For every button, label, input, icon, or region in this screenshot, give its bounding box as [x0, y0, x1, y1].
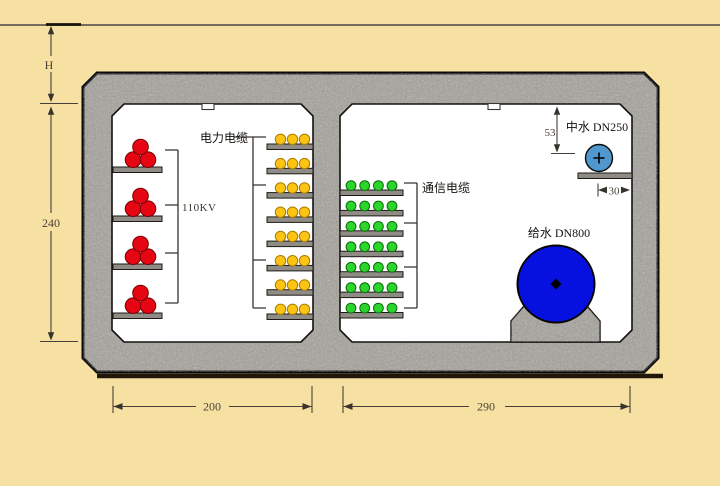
- power-cable: [275, 207, 285, 217]
- power-cable: [287, 304, 297, 314]
- power-cable: [275, 231, 285, 241]
- tunnel-cross-section-diagram: H 240 110KV 电力电缆 通信电缆 中水 DN250: [0, 0, 720, 486]
- cable-tray: [267, 265, 313, 271]
- dimension-30-label: 30: [609, 186, 621, 198]
- power-cable: [275, 304, 285, 314]
- ceiling-fixture-right: [488, 104, 500, 110]
- hv-cable: [133, 188, 149, 204]
- reclaimed-water-label: 中水 DN250: [566, 119, 628, 134]
- power-cable: [275, 280, 285, 290]
- comm-cable: [346, 201, 356, 211]
- comm-cable: [360, 181, 370, 191]
- comm-cable: [346, 222, 356, 232]
- comm-cable: [360, 262, 370, 272]
- comm-cable: [374, 181, 384, 191]
- comm-cable: [346, 262, 356, 272]
- comm-cable: [374, 262, 384, 272]
- pipe-bracket-shelf: [578, 173, 632, 179]
- cable-tray: [340, 210, 403, 216]
- power-cable: [287, 158, 297, 168]
- comm-cable: [360, 201, 370, 211]
- hv-cable: [133, 285, 149, 301]
- power-cable: [287, 134, 297, 144]
- hv-cable: [133, 236, 149, 252]
- power-cable: [299, 256, 309, 266]
- comm-cable-label: 通信电缆: [422, 181, 470, 195]
- cable-tray: [267, 144, 313, 150]
- cable-tray: [267, 217, 313, 223]
- comm-cable: [360, 303, 370, 313]
- water-supply-label: 给水 DN800: [528, 226, 590, 240]
- comm-cable: [387, 222, 397, 232]
- power-cable: [299, 304, 309, 314]
- cable-tray: [113, 313, 162, 319]
- power-cable: [287, 207, 297, 217]
- comm-cable: [374, 242, 384, 252]
- power-cable: [275, 256, 285, 266]
- power-cable-label: 电力电缆: [200, 131, 248, 145]
- comm-cable: [374, 201, 384, 211]
- cable-tray: [340, 313, 403, 319]
- cable-tray: [340, 292, 403, 298]
- power-cable: [299, 231, 309, 241]
- comm-cable: [374, 222, 384, 232]
- comm-cable: [387, 201, 397, 211]
- cable-tray: [267, 241, 313, 247]
- power-cable: [287, 183, 297, 193]
- cable-tray: [340, 231, 403, 237]
- hv-cable: [133, 139, 149, 155]
- dimension-240-label: 240: [42, 216, 60, 230]
- power-cable: [275, 183, 285, 193]
- power-cable: [299, 183, 309, 193]
- ground-line: [0, 25, 720, 26]
- dimension-200-label: 200: [203, 400, 221, 414]
- cable-tray: [340, 272, 403, 278]
- hv-voltage-label: 110KV: [182, 202, 216, 214]
- power-cable: [299, 207, 309, 217]
- cable-tray: [113, 216, 162, 222]
- power-cable: [287, 280, 297, 290]
- comm-cable: [360, 242, 370, 252]
- power-cable: [299, 280, 309, 290]
- cable-tray: [113, 167, 162, 173]
- comm-cable: [387, 303, 397, 313]
- ceiling-fixture-left: [202, 104, 214, 110]
- comm-cable: [346, 303, 356, 313]
- comm-cable: [387, 242, 397, 252]
- power-cable: [287, 256, 297, 266]
- dimension-53-label: 53: [545, 127, 557, 139]
- power-cable: [299, 134, 309, 144]
- comm-cable: [374, 303, 384, 313]
- power-cable: [287, 231, 297, 241]
- diagram-canvas: H 240 110KV 电力电缆 通信电缆 中水 DN250: [0, 0, 720, 486]
- comm-cable: [387, 181, 397, 191]
- comm-cable: [374, 283, 384, 293]
- dimension-h-label: H: [45, 58, 54, 72]
- comm-cable: [360, 222, 370, 232]
- power-cable: [275, 158, 285, 168]
- comm-cable: [387, 283, 397, 293]
- cable-tray: [267, 290, 313, 296]
- cable-tray: [340, 190, 403, 196]
- comm-cable: [360, 283, 370, 293]
- cable-tray: [113, 264, 162, 270]
- cable-tray: [267, 314, 313, 320]
- comm-cable: [346, 283, 356, 293]
- power-cable: [299, 158, 309, 168]
- cable-tray: [340, 251, 403, 257]
- power-cable: [275, 134, 285, 144]
- cable-tray: [267, 168, 313, 174]
- comm-cable: [387, 262, 397, 272]
- dimension-290-label: 290: [477, 400, 495, 414]
- cable-tray: [267, 193, 313, 199]
- comm-cable: [346, 181, 356, 191]
- comm-cable: [346, 242, 356, 252]
